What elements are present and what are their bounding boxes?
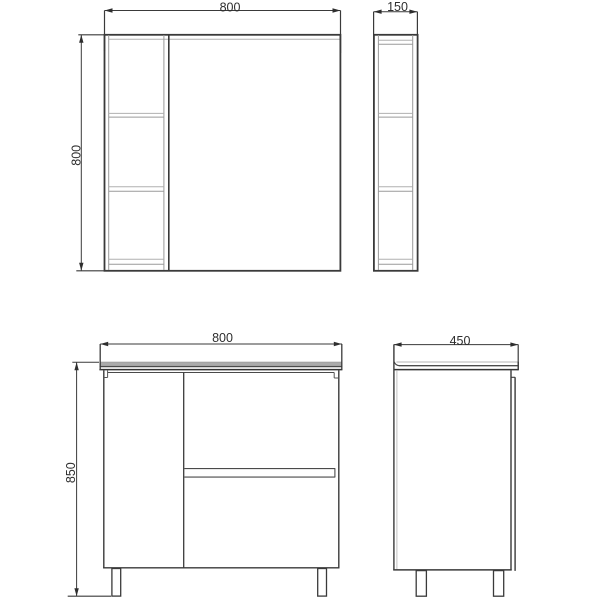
- svg-text:150: 150: [387, 0, 408, 14]
- svg-text:800: 800: [212, 331, 233, 345]
- svg-text:850: 850: [64, 462, 78, 483]
- svg-text:450: 450: [450, 334, 471, 348]
- svg-text:800: 800: [220, 1, 241, 15]
- svg-text:800: 800: [70, 145, 84, 166]
